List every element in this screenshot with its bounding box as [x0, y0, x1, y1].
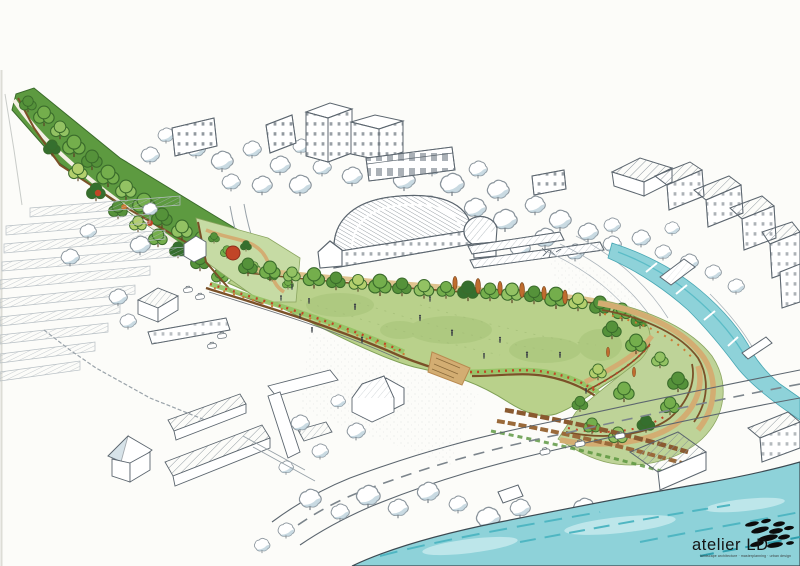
- logo-wordmark: atelier LD: [692, 536, 769, 554]
- tower-block-2: [351, 115, 403, 160]
- logo-tagline: landscape architecture · masterplanning …: [700, 554, 791, 558]
- accent-tree: [95, 190, 101, 196]
- tower-block-1: [306, 103, 352, 162]
- feature-red-tree: [226, 246, 240, 260]
- masterplan-sketch: atelier LD landscape architecture · mast…: [0, 0, 800, 566]
- illustration-canvas: atelier LD landscape architecture · mast…: [0, 0, 800, 566]
